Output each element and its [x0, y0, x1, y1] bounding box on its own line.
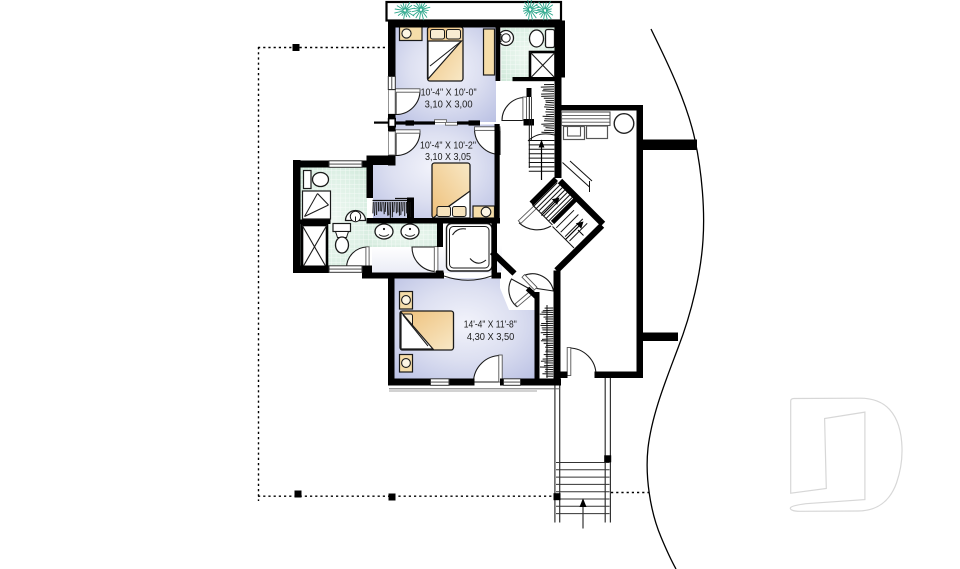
svg-text:4,30 X 3,50: 4,30 X 3,50 — [467, 331, 515, 343]
svg-text:10'-4" X 10'-0": 10'-4" X 10'-0" — [421, 86, 477, 98]
svg-text:10'-4" X 10'-2": 10'-4" X 10'-2" — [420, 139, 476, 151]
svg-text:3,10 X 3,05: 3,10 X 3,05 — [425, 151, 471, 163]
svg-text:3,10 X 3,00: 3,10 X 3,00 — [425, 98, 473, 110]
svg-text:14'-4" X 11'-8": 14'-4" X 11'-8" — [464, 319, 517, 331]
